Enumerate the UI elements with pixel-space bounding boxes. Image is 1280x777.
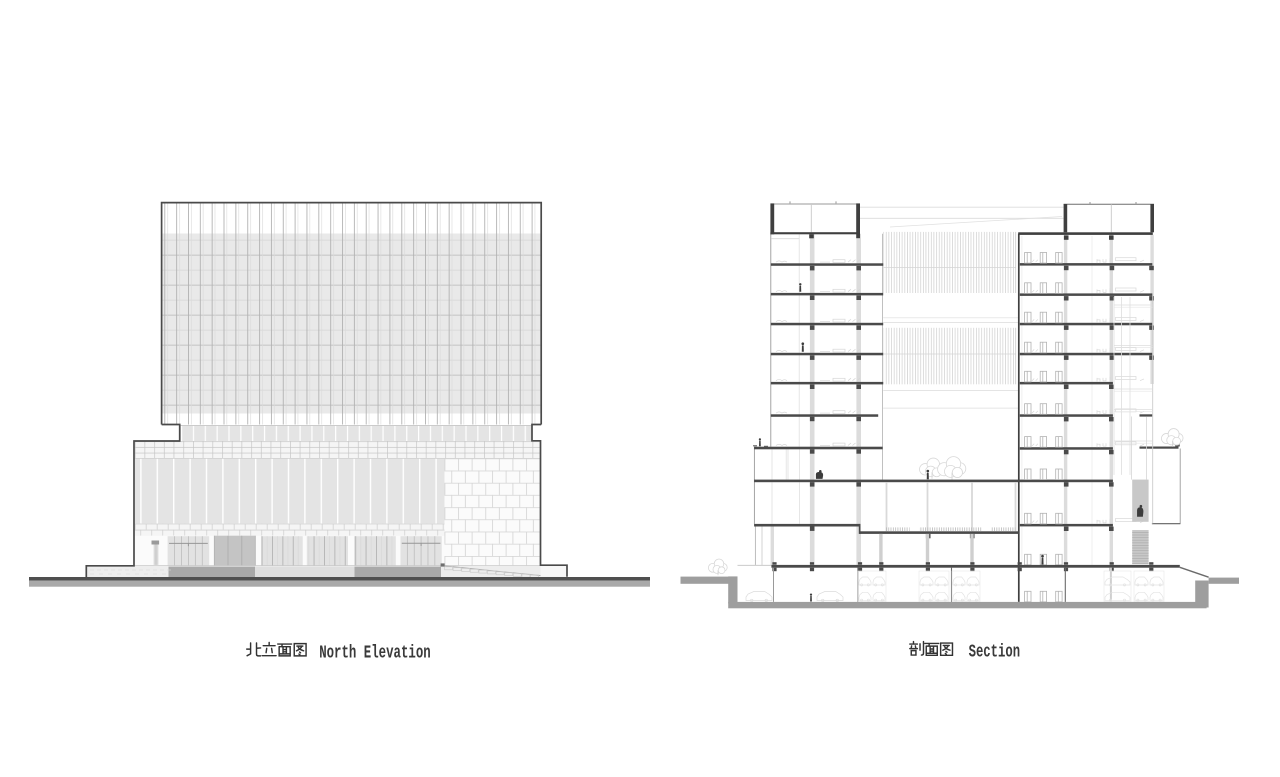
svg-text:North Elevation: North Elevation	[319, 643, 431, 663]
svg-text:Section: Section	[969, 643, 1021, 663]
